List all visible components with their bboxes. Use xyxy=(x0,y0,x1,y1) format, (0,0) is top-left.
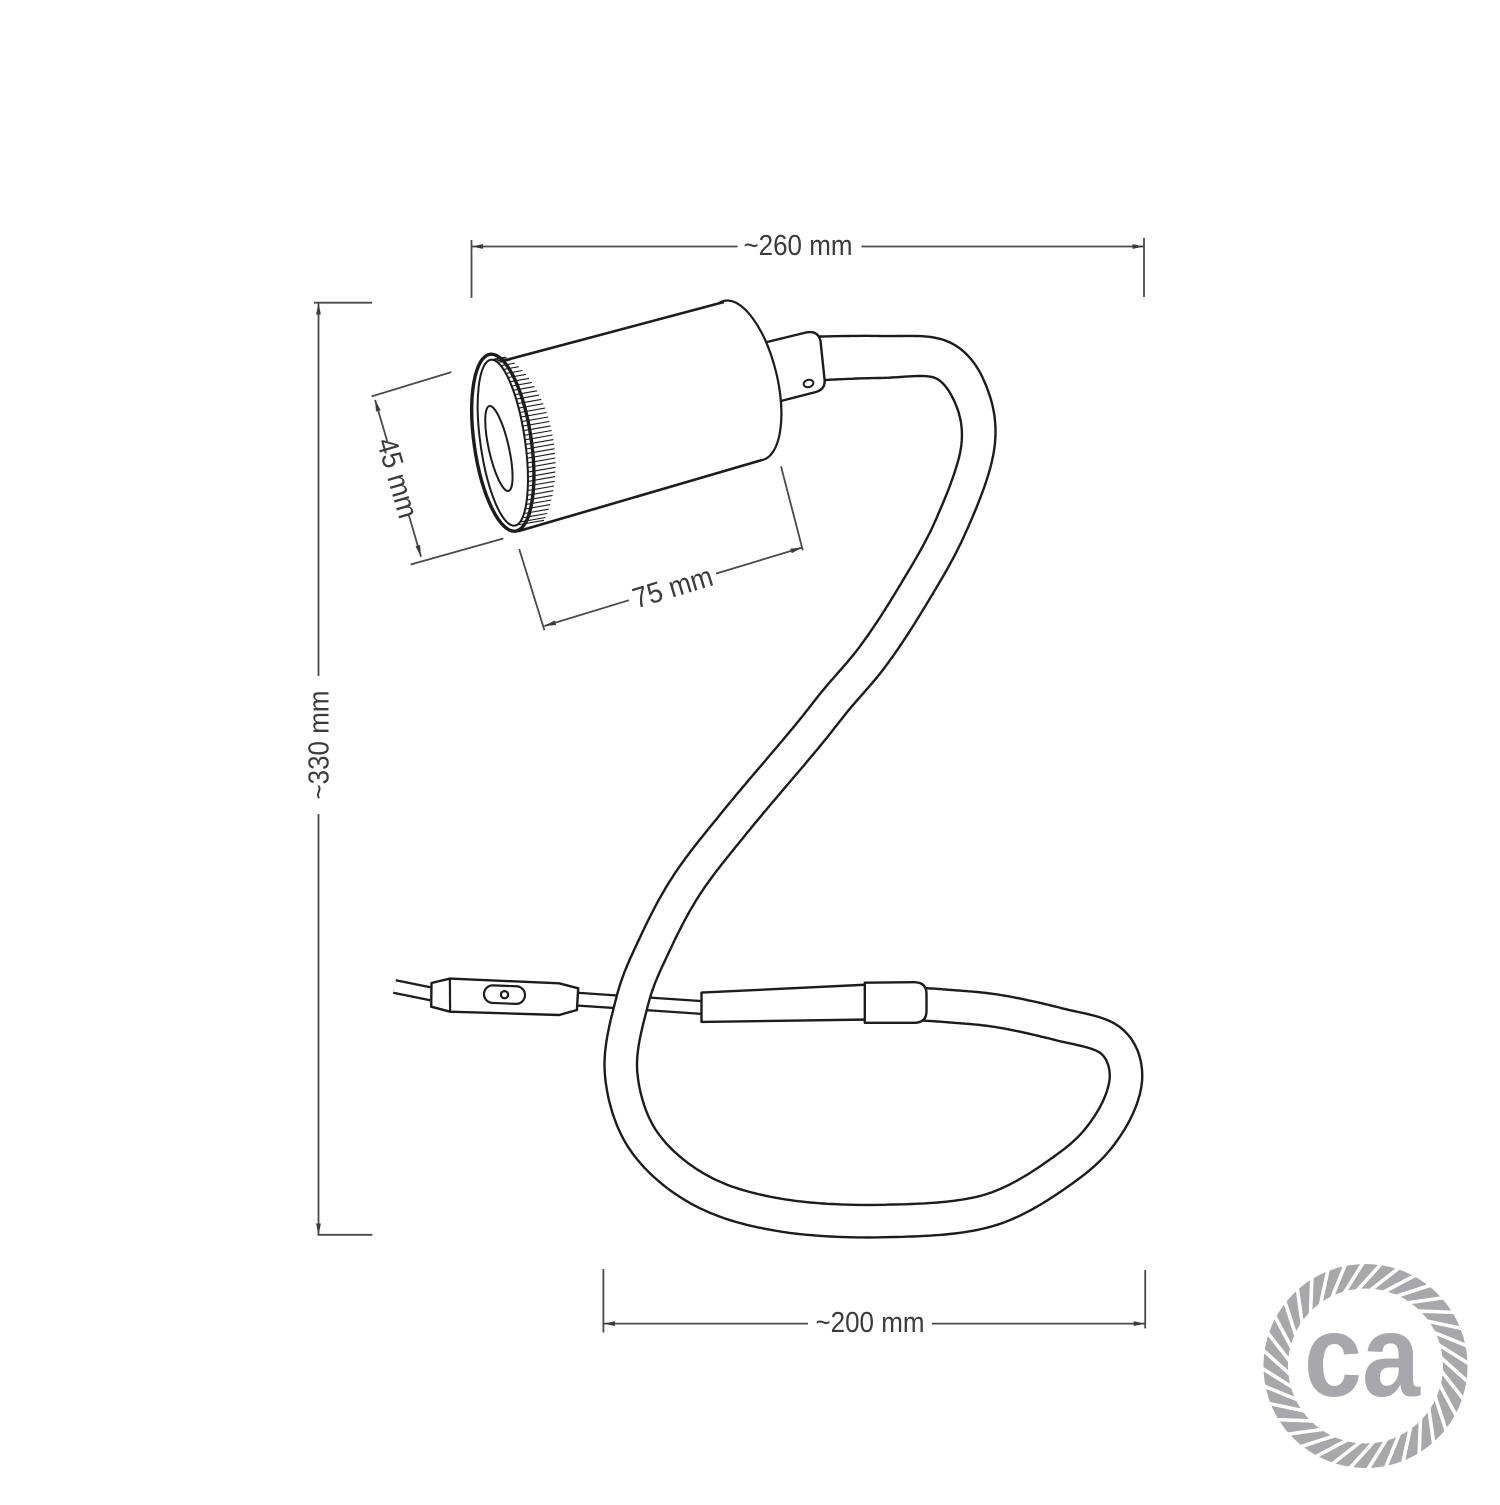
svg-text:ca: ca xyxy=(1304,1290,1421,1421)
svg-text:~200 mm: ~200 mm xyxy=(816,1307,925,1339)
svg-text:~330 mm: ~330 mm xyxy=(304,691,336,800)
svg-text:~260 mm: ~260 mm xyxy=(744,230,853,262)
